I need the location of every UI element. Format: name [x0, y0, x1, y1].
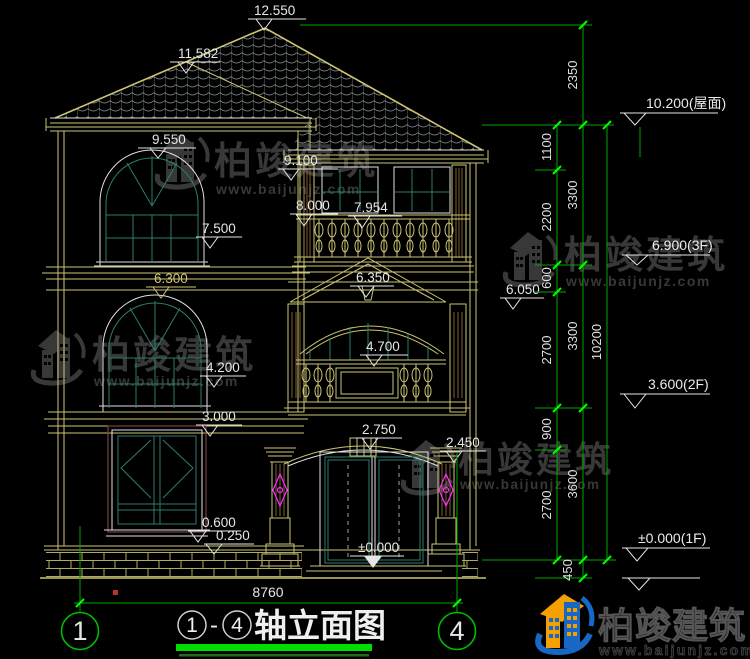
plinth [46, 552, 478, 577]
level-markers: 10.200(屋面) 6.900(3F) 3.600(2F) ±0.000(1F… [620, 95, 726, 590]
elevation-drawing: 柏竣建筑 www.baijunjz.com 柏竣建筑 www.baijunjz.… [0, 0, 750, 659]
label-4700: 4.700 [366, 339, 400, 354]
label-6350: 6.350 [356, 270, 390, 285]
logo-name: 柏竣建筑 [598, 605, 746, 646]
label-9100: 9.100 [284, 153, 318, 168]
label-3000: 3.000 [202, 409, 236, 424]
watermark-url: www.baijunjz.com [565, 273, 711, 289]
vdim-1100: 1100 [539, 133, 554, 161]
label-9550: 9.550 [152, 132, 186, 147]
vdim-2350: 2350 [565, 61, 580, 90]
cad-elevation-screenshot: 柏竣建筑 www.baijunjz.com 柏竣建筑 www.baijunjz.… [0, 0, 750, 659]
entry-column-left [260, 448, 300, 566]
title-axis-b: 4 [231, 614, 243, 637]
label-8000: 8.000 [296, 198, 330, 213]
marker-3f: 6.900(3F) [652, 237, 713, 253]
label-2450: 2.450 [446, 435, 480, 450]
title-underline [176, 644, 372, 651]
axis-number-right: 4 [449, 616, 464, 646]
vdim-2700b: 2700 [539, 491, 554, 520]
balustrade-3f [315, 219, 453, 257]
marker-1f: ±0.000(1F) [638, 530, 706, 546]
overall-width: 8760 [252, 584, 283, 600]
page-title: 轴立面图 [254, 607, 386, 644]
vdim-900: 900 [539, 418, 554, 440]
title-axis-a: 1 [186, 614, 198, 637]
title-underline-2 [179, 654, 369, 657]
vdim-2700a: 2700 [539, 336, 554, 365]
vdim-3300a: 3300 [565, 181, 580, 210]
company-logo: 柏竣建筑 www.baijunjz.com [538, 594, 750, 658]
window-1f-left [104, 426, 210, 536]
title-dash: - [210, 612, 218, 639]
drawing-title: 1 - 4 轴立面图 [176, 607, 386, 657]
vdim-3600: 3600 [565, 470, 580, 499]
balustrade-2f [302, 364, 432, 402]
vdim-600: 600 [539, 267, 554, 289]
watermark-url: www.baijunjz.com [215, 181, 361, 197]
vdim-3300b: 3300 [565, 322, 580, 351]
vdim-10200: 10200 [589, 324, 604, 360]
logo-url: www.baijunjz.com [598, 642, 750, 658]
marker-roof: 10.200(屋面) [646, 95, 726, 111]
watermark-url: www.baijunjz.com [93, 373, 239, 389]
vdim-450: 450 [560, 559, 575, 581]
axis-number-left: 1 [72, 616, 87, 646]
bay-window-2f [284, 304, 470, 415]
label-6300: 6.300 [154, 271, 188, 286]
label-0250: 0.250 [216, 528, 250, 543]
marker-2f: 3.600(2F) [648, 376, 709, 392]
watermark-bottom-right: 柏竣建筑 www.baijunjz.com [403, 439, 614, 493]
label-4200: 4.200 [206, 360, 240, 375]
logo-icon [538, 594, 592, 652]
label-2750: 2.750 [362, 422, 396, 437]
label-7500: 7.500 [202, 221, 236, 236]
dimension-ticks [553, 21, 611, 582]
label-11582: 11.582 [178, 46, 218, 61]
label-7954: 7.954 [354, 200, 388, 215]
label-12550: 12.550 [254, 3, 295, 18]
watermark-name: 柏竣建筑 [458, 439, 614, 480]
label-6050: 6.050 [506, 282, 540, 297]
label-zero: ±0.000 [358, 540, 399, 555]
vdim-2200: 2200 [539, 203, 554, 232]
red-mark [113, 590, 118, 595]
